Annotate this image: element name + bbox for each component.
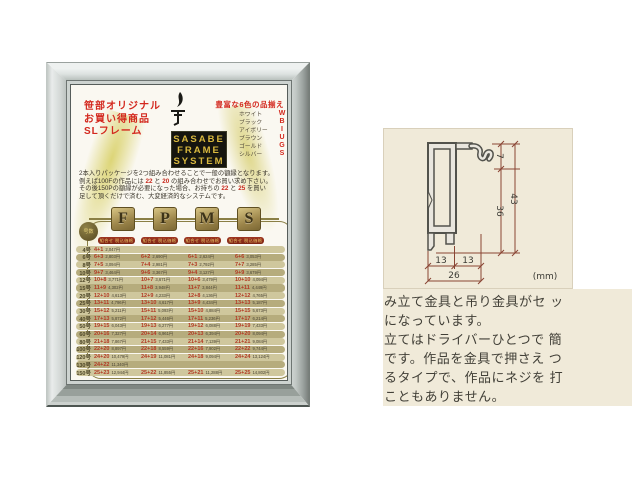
combo-value: 24+24 [235,354,250,360]
combo-value: 7+5 [94,262,103,268]
color-code: U [278,134,286,142]
table-cell: 22+167,902円 [185,346,232,352]
highlight-number: 22 [145,178,152,185]
table-cell: 11+114,449円 [232,285,279,291]
combo-value: 22+20 [94,346,109,352]
intro-text: 2本入りパッケージを2つ組み合わせることで一般の額縁となります。 [79,170,274,177]
combo-value: 21+18 [94,339,109,345]
price-value: 2,981円 [150,262,167,268]
price-value: 7,327円 [109,331,126,337]
combo-value: 11+11 [235,285,250,291]
dim-unit: (mm) [533,272,558,282]
table-cell: 15+125,211円 [91,308,138,314]
price-value: 5,211円 [109,308,125,314]
combo-value: 20+16 [94,331,109,337]
price-value: 4,884円 [203,308,220,314]
row-size-label: 50号 [76,323,91,330]
series-tile-M: M [195,207,219,231]
combo-value: 15+12 [94,308,109,314]
promo-line: お買い得商品 [84,114,161,127]
price-value: 3,679円 [244,270,261,276]
price-value: 4,765円 [250,293,267,299]
price-value: 5,236円 [203,316,220,322]
table-cell: 22+188,559円 [138,346,185,352]
price-value: 2,690円 [150,254,167,260]
frame-rail-top [46,62,310,84]
color-code-list: WBIUGS [278,110,286,159]
price-value: 6,394円 [203,331,220,337]
size-badge: 号数 [79,222,98,241]
price-value: 3,367円 [150,270,167,276]
table-cell: 21+187,867円 [91,339,138,345]
promo-text: 笹部オリジナルお買い得商品SLフレーム [84,101,161,139]
table-cell: 25+2514,802円 [232,370,279,376]
table-cell: 19+156,043円 [91,323,138,329]
table-row: 8号7+53,094円7+42,981円7+32,792円7+73,285円 [76,261,285,268]
price-value: 11,340円 [109,362,128,368]
table-row: 100号22+208,897円22+188,559円22+167,902円22+… [76,346,285,353]
combo-value: 24+18 [188,354,203,360]
combo-value: 17+11 [188,316,203,322]
price-value: 6,088円 [203,323,220,329]
description-line: 立てはドライバーひとつで 簡 [384,330,632,349]
table-cell: 17+176,214円 [232,316,279,322]
price-value: 2,792円 [197,262,214,268]
combo-value: 20+20 [235,331,250,337]
row-size-label: 40号 [76,315,91,322]
torch-logo-icon [167,92,189,127]
table-cell: 7+53,094円 [91,262,138,268]
color-name: ゴールド [239,143,268,151]
poster: 笹部オリジナルお買い得商品SLフレーム SASABEFRAMESYSTEM 豊富… [70,84,288,381]
table-cell: 12+84,136円 [185,293,232,299]
table-cell: 24+2413,124円 [232,354,279,360]
table-cell: 20+167,327円 [91,331,138,337]
price-value: 3,771円 [106,277,123,283]
table-cell: 25+2111,288円 [185,370,232,376]
table-cell: 11+94,302円 [91,285,138,291]
page: 笹部オリジナルお買い得商品SLフレーム SASABEFRAMESYSTEM 豊富… [0,0,640,480]
table-cell: 6+63,053円 [232,254,279,260]
combo-value: 17+17 [235,316,250,322]
row-size-label: 4号 [76,246,91,253]
intro-text: と [153,178,163,185]
table-cell: 24+2211,340円 [91,362,138,368]
frame-rail-right [288,62,310,407]
row-size-label: 25号 [76,300,91,307]
price-value: 4,233円 [153,293,170,299]
table-row: 120号24+2010,479円24+1911,081円24+189,094円2… [76,354,285,361]
table-row: 10号9+73,464円9+63,367円9+43,127円9+93,679円 [76,269,285,276]
price-value: 3,948円 [153,285,170,291]
combo-value: 12+8 [188,293,200,299]
price-value: 7,433円 [250,323,267,329]
price-value: 5,673円 [250,308,267,314]
combo-value: 13+11 [94,300,109,306]
row-size-label: 60号 [76,331,91,338]
color-name: ホワイト [239,111,268,119]
table-cell: 6+22,690円 [138,254,185,260]
price-value: 9,744円 [250,346,267,352]
price-value: 4,302円 [106,285,123,291]
description-line: るタイプで、作品にネジを 打 [384,368,632,387]
description-line: です。作品を金具で押さえ つ [384,349,632,368]
column-header-badge: 組合せ 税込価格 [184,237,221,244]
table-cell: 17+135,872円 [91,316,138,322]
price-value: 3,671円 [153,277,170,283]
row-size-label: 12号 [76,277,91,284]
series-tile-S: S [237,207,261,231]
table-cell: 9+93,679円 [232,270,279,276]
table-cell: 17+115,236円 [185,316,232,322]
combo-value: 11+7 [188,285,200,291]
colors-heading: 豊富な6色の品揃え [215,99,284,110]
combo-value: 21+14 [188,339,203,345]
price-value: 6,277円 [156,323,173,329]
combo-value: 20+13 [188,331,203,337]
intro-line: 2本入りパッケージを2つ組み合わせることで一般の額縁となります。 [79,170,282,178]
dim-13-right: 13 [462,256,473,266]
description-line: になっています。 [384,311,632,330]
combo-value: 6+2 [141,254,150,260]
row-size-label: 80号 [76,338,91,345]
color-name: アイボリー [239,127,268,135]
intro-text: 足して頂くだけで済む、大変経済的なシステムです。 [79,193,229,200]
price-value: 9,084円 [250,339,267,345]
dim-13-left: 13 [435,256,446,266]
combo-value: 17+13 [94,316,109,322]
table-cell: 15+104,884円 [185,308,232,314]
combo-value: 9+4 [188,270,197,276]
combo-value: 12+9 [141,293,153,299]
combo-value: 9+7 [94,270,103,276]
price-value: 7,433円 [156,339,173,345]
row-size-label: 120号 [76,354,91,361]
column-header-badge: 組合せ 税込価格 [98,237,135,244]
combo-value: 21+15 [141,339,156,345]
table-cell: 4+12,047円 [91,247,138,253]
price-value: 9,094円 [203,354,220,360]
combo-value: 22+22 [235,346,250,352]
table-cell: 13+104,617円 [138,300,185,306]
price-value: 2,803円 [103,254,120,260]
combo-value: 25+25 [235,370,250,376]
table-row: 50号19+156,043円19+136,277円19+126,088円19+1… [76,323,285,330]
description-line: み立て金具と吊り金具がセ ッ [384,292,632,311]
row-size-label: 6号 [76,254,91,261]
column-header-badge: 組合せ 税込価格 [141,237,178,244]
table-cell: 22+208,897円 [91,346,138,352]
dim-43: 43 [508,193,518,204]
row-size-label: 130号 [76,361,91,368]
price-value: 4,094円 [250,277,267,283]
table-cell: 10+83,771円 [91,277,138,283]
combo-value: 13+9 [188,300,200,306]
combo-value: 15+15 [235,308,250,314]
table-row: 150号25+2312,944円25+2211,855円25+2111,288円… [76,369,285,376]
table-cell: 11+83,948円 [138,285,185,291]
combo-value: 9+9 [235,270,244,276]
table-cell: 9+73,464円 [91,270,138,276]
combo-value: 7+3 [188,262,197,268]
table-row: 12号10+83,771円10+73,671円10+63,479円10+104,… [76,277,285,284]
table-cell: 19+126,088円 [185,323,232,329]
table-cell: 12+94,233円 [138,293,185,299]
combo-value: 20+14 [141,331,156,337]
price-value: 4,617円 [156,300,173,306]
price-value: 6,214円 [250,316,267,322]
table-cell: 13+135,187円 [232,300,279,306]
table-row: 30号15+125,211円15+115,093円15+104,884円15+1… [76,308,285,315]
price-value: 3,285円 [244,262,261,268]
table-cell: 12+124,765円 [232,293,279,299]
table-cell: 13+94,434円 [185,300,232,306]
color-code: I [278,126,286,134]
combo-value: 13+13 [235,300,250,306]
price-value: 6,961円 [156,331,173,337]
combo-value: 25+21 [188,370,203,376]
intro-text: 例えば100Fの作品には [79,178,145,185]
price-value: 7,139円 [203,339,220,345]
price-value: 5,187円 [250,300,267,306]
combo-value: 17+12 [141,316,156,322]
table-cell: 10+73,671円 [138,277,185,283]
price-value: 3,479円 [200,277,217,283]
table-cell: 10+63,479円 [185,277,232,283]
intro-text: を買い [245,185,266,192]
price-value: 3,844円 [200,285,217,291]
logo-line: FRAME [172,145,226,156]
logo-line: SASABE [172,134,226,145]
table-cell: 6+32,803円 [91,254,138,260]
price-value: 4,796円 [109,300,126,306]
table-row: 6号6+32,803円6+22,690円6+12,624円6+63,053円 [76,254,285,261]
combo-value: 25+23 [94,370,109,376]
table-cell: 19+136,277円 [138,323,185,329]
table-cell: 20+146,961円 [138,331,185,337]
table-cell: 17+125,446円 [138,316,185,322]
table-cell: 9+43,127円 [185,270,232,276]
price-value: 3,127円 [197,270,214,276]
logo-line: SYSTEM [172,156,226,167]
row-size-label: 100号 [76,346,91,353]
intro-text: その後150Pの額縁が必要になった場合、お持ちの [79,185,221,192]
price-value: 3,464円 [103,270,120,276]
price-value: 10,479円 [109,354,128,360]
table-row: 80号21+187,867円21+157,433円21+147,139円21+2… [76,338,285,345]
price-value: 5,446円 [156,316,173,322]
price-value: 5,093円 [156,308,173,314]
combo-value: 11+9 [94,285,106,291]
row-size-label: 8号 [76,261,91,268]
promo-line: SLフレーム [84,126,161,139]
description-line: こともありません。 [384,387,632,406]
color-name-list: ホワイトブラックアイボリーブラウンゴールドシルバー [239,111,268,159]
table-cell: 15+115,093円 [138,308,185,314]
table-cell: 19+197,433円 [232,323,279,329]
combo-value: 7+7 [235,262,244,268]
row-size-label: 15号 [76,284,91,291]
table-cell: 13+114,796円 [91,300,138,306]
combo-value: 12+12 [235,293,250,299]
row-size-label: 10号 [76,269,91,276]
intro-line: その後150Pの額縁が必要になった場合、お持ちの 22 と 25 を買い [79,185,282,193]
price-value: 8,094円 [250,331,267,337]
intro-text: の組み合わせでお買い求め下さい。 [169,178,272,185]
price-value: 11,288円 [203,370,222,376]
price-value: 11,081円 [156,354,175,360]
table-cell: 24+2010,479円 [91,354,138,360]
combo-value: 6+1 [188,254,197,260]
color-code: W [278,110,286,118]
table-row: 15号11+94,302円11+83,948円11+73,844円11+114,… [76,284,285,291]
row-size-label: 20号 [76,292,91,299]
intro-paragraph: 2本入りパッケージを2つ組み合わせることで一般の額縁となります。例えば100Fの… [79,170,282,201]
combo-value: 19+13 [141,323,156,329]
poster-frame: 笹部オリジナルお買い得商品SLフレーム SASABEFRAMESYSTEM 豊富… [46,62,310,407]
table-cell: 6+12,624円 [185,254,232,260]
column-header-badge: 組合せ 税込価格 [227,237,264,244]
combo-value: 24+19 [141,354,156,360]
price-value: 5,872円 [109,316,126,322]
dim-26: 26 [448,271,460,281]
price-table: 4号4+12,047円6号6+32,803円6+22,690円6+12,624円… [76,246,285,377]
combo-value: 22+18 [141,346,156,352]
color-code: S [278,150,286,158]
product-description: み立て金具と吊り金具がセ ッになっています。立てはドライバーひとつで 簡です。作… [383,289,632,406]
profile-cross-section: 7 36 43 13 13 26 (mm) [384,129,574,290]
combo-value: 13+10 [141,300,156,306]
combo-value: 9+6 [141,270,150,276]
table-cell: 21+219,084円 [232,339,279,345]
combo-value: 22+16 [188,346,203,352]
combo-value: 15+11 [141,308,156,314]
table-row: 20号12+104,613円12+94,233円12+84,136円12+124… [76,292,285,299]
table-cell: 22+229,744円 [232,346,279,352]
table-row: 4号4+12,047円 [76,246,285,253]
color-name: シルバー [239,151,268,159]
frame-rail-left [46,62,70,407]
table-cell: 20+136,394円 [185,331,232,337]
table-cell: 24+189,094円 [185,354,232,360]
combo-value: 25+22 [141,370,156,376]
table-cell: 7+32,792円 [185,262,232,268]
combo-value: 10+8 [94,277,106,283]
combo-value: 19+19 [235,323,250,329]
table-cell: 21+157,433円 [138,339,185,345]
price-value: 8,897円 [109,346,126,352]
table-cell: 20+208,094円 [232,331,279,337]
table-cell: 11+73,844円 [185,285,232,291]
table-cell: 9+63,367円 [138,270,185,276]
price-value: 8,559円 [156,346,173,352]
table-row: 130号24+2211,340円 [76,361,285,368]
combo-value: 10+7 [141,277,153,283]
combo-value: 12+10 [94,293,109,299]
combo-value: 11+8 [141,285,153,291]
combo-value: 10+10 [235,277,250,283]
series-tile-P: P [153,207,177,231]
combo-value: 15+10 [188,308,203,314]
row-size-label: 150号 [76,369,91,376]
table-cell: 25+2211,855円 [138,370,185,376]
table-cell: 7+42,981円 [138,262,185,268]
combo-value: 10+6 [188,277,200,283]
price-value: 4,449円 [250,285,267,291]
combo-value: 24+22 [94,362,109,368]
price-value: 7,867円 [109,339,126,345]
row-size-label: 30号 [76,308,91,315]
table-cell: 25+2312,944円 [91,370,138,376]
combo-value: 4+1 [94,247,103,253]
table-cell: 24+1911,081円 [138,354,185,360]
combo-value: 19+15 [94,323,109,329]
price-value: 4,434円 [200,300,217,306]
combo-value: 6+6 [235,254,244,260]
table-cell: 12+104,613円 [91,293,138,299]
price-value: 3,094円 [103,262,120,268]
price-value: 2,047円 [103,247,120,253]
color-code: B [278,118,286,126]
promo-line: 笹部オリジナル [84,101,161,114]
combo-value: 7+4 [141,262,150,268]
price-value: 13,124円 [250,354,269,360]
frame-rail-bottom [46,381,310,407]
price-value: 3,053円 [244,254,261,260]
combo-value: 6+3 [94,254,103,260]
table-cell: 7+73,285円 [232,262,279,268]
price-value: 6,043円 [109,323,126,329]
price-value: 4,136円 [200,293,217,299]
price-value: 4,613円 [109,293,126,299]
price-value: 12,944円 [109,370,128,376]
combo-value: 19+12 [188,323,203,329]
intro-line: 足して頂くだけで済む、大変経済的なシステムです。 [79,193,282,201]
series-tile-F: F [111,207,135,231]
price-value: 2,624円 [197,254,214,260]
dim-36: 36 [494,205,504,217]
table-cell: 21+147,139円 [185,339,232,345]
price-value: 14,802円 [250,370,269,376]
color-code: G [278,142,286,150]
price-value: 11,855円 [156,370,175,376]
table-cell: 15+155,673円 [232,308,279,314]
combo-value: 21+21 [235,339,250,345]
table-row: 25号13+114,796円13+104,617円13+94,434円13+13… [76,300,285,307]
color-name: ブラック [239,119,268,127]
table-row: 40号17+135,872円17+125,446円17+115,236円17+1… [76,315,285,322]
table-row: 60号20+167,327円20+146,961円20+136,394円20+2… [76,331,285,338]
brand-logo: SASABEFRAMESYSTEM [171,131,227,168]
combo-value: 24+20 [94,354,109,360]
intro-text: と [228,185,238,192]
profile-diagram-panel: 7 36 43 13 13 26 (mm) [383,128,573,289]
color-name: ブラウン [239,135,268,143]
table-cell: 10+104,094円 [232,277,279,283]
dim-7: 7 [494,153,504,159]
price-value: 7,902円 [203,346,220,352]
